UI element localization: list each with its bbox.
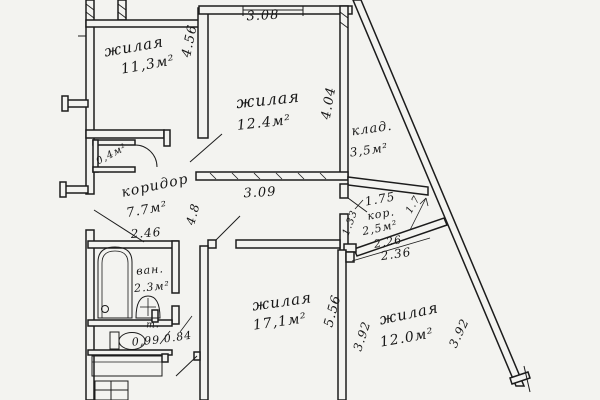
dim-0-99: 0,99 [131, 334, 160, 347]
kitchen-counter-icon [92, 356, 162, 376]
floor-plan-walls [0, 0, 600, 400]
room-label-toilet: т. [146, 322, 159, 331]
bathtub-icon [98, 247, 132, 318]
floor-plan: жилая 11,3м² жилая 12.4м² клад. 3,5м² ко… [0, 0, 600, 400]
room-area-bath: 2.3м² [134, 280, 171, 294]
dim-2-46: 2.46 [130, 226, 161, 240]
dim-3-08: 3.08 [246, 9, 280, 24]
room-label-bath: ван. [136, 263, 165, 276]
dim-3-09: 3.09 [243, 186, 277, 201]
kitchen-sink-icon [95, 381, 128, 400]
